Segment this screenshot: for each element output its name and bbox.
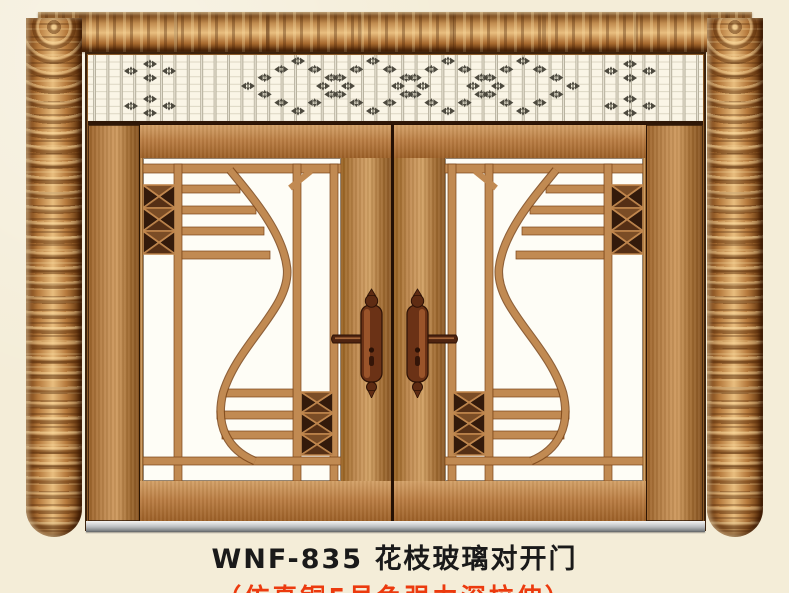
carved-frame-left-column [26,18,82,537]
door-handle-left [330,288,390,398]
door-glass-panel [143,158,341,481]
door-leaf-top-rail [140,125,392,158]
copper-grille-flower-branch [445,158,643,481]
carved-frame-top-band [38,12,752,52]
door-jamb-left [88,125,140,521]
copper-grille-flower-branch [143,158,341,481]
caption: WNF-835 花枝玻璃对开门 （仿真铜5号色强力深拉伸） [0,537,789,593]
product-photo-copper-double-door: WNF-835 花枝玻璃对开门 （仿真铜5号色强力深拉伸） [0,0,789,593]
door-glass-panel [445,158,643,481]
door-jamb-right [646,125,703,521]
threshold-sill [86,521,705,532]
door-leaf-top-rail [394,125,646,158]
door-leaf-hinge-stile [643,158,646,481]
door-leaf-bottom-rail [394,481,646,521]
carved-frame-right-column [707,18,763,537]
transom-lattice-window [88,55,703,122]
caption-finish-line: （仿真铜5号色强力深拉伸） [0,578,789,593]
door-meeting-gap [391,125,394,521]
caption-model-line: WNF-835 花枝玻璃对开门 [0,537,789,576]
door-leaf-bottom-rail [140,481,392,521]
door-handle-right [399,288,459,398]
